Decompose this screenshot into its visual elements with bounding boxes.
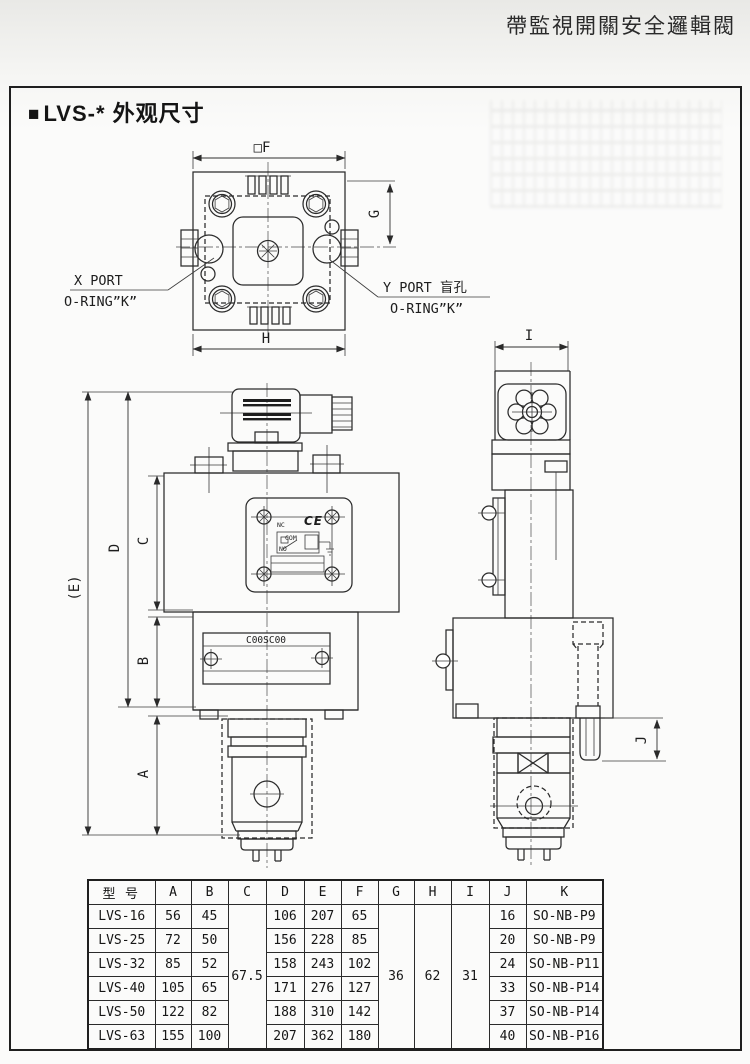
y-port-callout: Y PORT 盲孔 O-RING”K” <box>330 260 490 317</box>
cell-b: 52 <box>191 953 228 977</box>
header-i: I <box>451 880 489 905</box>
side-port-tab <box>432 630 458 690</box>
cell-k: SO-NB-P14 <box>526 977 603 1001</box>
center-screw-symbol <box>258 241 279 262</box>
cell-e: 310 <box>304 1001 341 1025</box>
dimension-j: J <box>602 718 666 761</box>
cell-b: 65 <box>191 977 228 1001</box>
socket-bolt <box>209 191 235 217</box>
cell-d: 158 <box>266 953 304 977</box>
cartridge-side <box>490 718 578 860</box>
side-mount-plate <box>478 498 505 595</box>
cell-b: 82 <box>191 1001 228 1025</box>
cell-a: 72 <box>155 929 191 953</box>
brand-plate: C00SC00 <box>200 633 333 684</box>
valve-main-body <box>164 473 399 612</box>
cable-gland <box>332 397 352 430</box>
left-connector-serration <box>181 230 198 266</box>
cell-d: 106 <box>266 905 304 929</box>
cell-e: 228 <box>304 929 341 953</box>
cell-f: 127 <box>341 977 378 1001</box>
x-port-oring-label: O-RING”K” <box>64 294 137 310</box>
x-port-hole <box>195 235 223 263</box>
cell-j: 40 <box>489 1025 526 1050</box>
cell-h-merged: 62 <box>414 905 451 1050</box>
no-label: NO <box>279 545 287 553</box>
header-h: H <box>414 880 451 905</box>
socket-bolt <box>303 286 329 312</box>
cell-j: 24 <box>489 953 526 977</box>
front-view: NC CE COM NO C00SC00 <box>164 383 399 868</box>
header-k: K <box>526 880 603 905</box>
cell-j: 37 <box>489 1001 526 1025</box>
left-dimensions: (E) D C B A <box>67 392 240 835</box>
com-label: COM <box>285 534 297 542</box>
cell-b: 100 <box>191 1025 228 1050</box>
cell-model: LVS-40 <box>88 977 155 1001</box>
table-row: LVS-32 85 52 158 243 102 24 SO-NB-P11 <box>88 953 603 977</box>
dim-f-label: □F <box>254 140 271 156</box>
y-port-oring-label: O-RING”K” <box>390 301 463 317</box>
din-connector <box>228 389 352 471</box>
dim-c-label: C <box>136 537 152 545</box>
ce-mark: CE <box>304 514 323 528</box>
cell-a: 105 <box>155 977 191 1001</box>
header-a: A <box>155 880 191 905</box>
dim-b-label: B <box>136 657 152 665</box>
dim-e-label: (E) <box>67 575 83 600</box>
cell-d: 207 <box>266 1025 304 1050</box>
header-j: J <box>489 880 526 905</box>
cell-k: SO-NB-P16 <box>526 1025 603 1050</box>
dim-g-label: G <box>367 210 383 218</box>
dimension-i: I <box>495 328 568 371</box>
cell-k: SO-NB-P11 <box>526 953 603 977</box>
header-g: G <box>378 880 414 905</box>
cell-i-merged: 31 <box>451 905 489 1050</box>
cell-model: LVS-32 <box>88 953 155 977</box>
cell-d: 188 <box>266 1001 304 1025</box>
brand-label: C00SC00 <box>246 635 286 646</box>
cell-c-merged: 67.5 <box>228 905 266 1050</box>
cell-f: 180 <box>341 1025 378 1050</box>
socket-bolt <box>303 191 329 217</box>
header-b: B <box>191 880 228 905</box>
cell-a: 122 <box>155 1001 191 1025</box>
cell-a: 85 <box>155 953 191 977</box>
table-row: LVS-25 72 50 156 228 85 20 SO-NB-P9 <box>88 929 603 953</box>
side-view: I <box>432 328 666 868</box>
locating-pin <box>580 718 600 760</box>
scanned-catalog-page: { "page": { "header_title": "帶監視開關安全邏輯閥"… <box>0 0 750 1064</box>
dim-d-label: D <box>107 544 123 552</box>
header-f: F <box>341 880 378 905</box>
serial-label-strip <box>271 556 324 572</box>
cell-a: 155 <box>155 1025 191 1050</box>
hidden-bolt <box>573 622 603 718</box>
cell-b: 45 <box>191 905 228 929</box>
cell-model: LVS-63 <box>88 1025 155 1050</box>
table-row: LVS-50 122 82 188 310 142 37 SO-NB-P14 <box>88 1001 603 1025</box>
top-view <box>176 162 396 340</box>
right-connector-serration <box>341 230 358 266</box>
cell-f: 102 <box>341 953 378 977</box>
cell-f: 65 <box>341 905 378 929</box>
solenoid-tube-side <box>505 490 573 618</box>
cell-d: 156 <box>266 929 304 953</box>
table-row: LVS-16 56 45 67.5 106 207 65 36 62 31 16… <box>88 905 603 929</box>
socket-bolt <box>209 286 235 312</box>
cell-k: SO-NB-P9 <box>526 929 603 953</box>
dim-j-label: J <box>634 736 650 744</box>
dim-a-label: A <box>136 769 152 778</box>
cell-model: LVS-16 <box>88 905 155 929</box>
cell-e: 243 <box>304 953 341 977</box>
table-header-row: 型 号 A B C D E F G H I J K <box>88 880 603 905</box>
cell-j: 16 <box>489 905 526 929</box>
header-d: D <box>266 880 304 905</box>
dimension-table: 型 号 A B C D E F G H I J K LVS-16 56 45 6… <box>87 879 604 1050</box>
manual-override-knob <box>495 371 570 440</box>
cell-g-merged: 36 <box>378 905 414 1050</box>
dimension-h: H <box>193 331 345 356</box>
cell-model: LVS-50 <box>88 1001 155 1025</box>
cell-j: 33 <box>489 977 526 1001</box>
cell-k: SO-NB-P14 <box>526 1001 603 1025</box>
table-row: LVS-63 155 100 207 362 180 40 SO-NB-P16 <box>88 1025 603 1050</box>
header-model: 型 号 <box>88 880 155 905</box>
cell-f: 85 <box>341 929 378 953</box>
x-port-label: X PORT <box>74 273 123 289</box>
cell-f: 142 <box>341 1001 378 1025</box>
cartridge-front <box>193 710 358 861</box>
y-port-label: Y PORT 盲孔 <box>383 279 467 296</box>
cell-b: 50 <box>191 929 228 953</box>
cell-j: 20 <box>489 929 526 953</box>
cell-e: 362 <box>304 1025 341 1050</box>
nameplate: NC CE COM NO <box>246 498 352 592</box>
manifold-block-side <box>453 618 613 718</box>
bottom-terminal-comb <box>247 307 292 324</box>
cell-e: 276 <box>304 977 341 1001</box>
cell-e: 207 <box>304 905 341 929</box>
y-port-hole <box>313 235 341 263</box>
dim-h-label: H <box>262 331 270 347</box>
dim-i-label: I <box>525 328 533 344</box>
cell-a: 56 <box>155 905 191 929</box>
dimension-f: □F <box>193 140 345 169</box>
header-c: C <box>228 880 266 905</box>
cell-k: SO-NB-P9 <box>526 905 603 929</box>
header-e: E <box>304 880 341 905</box>
cell-model: LVS-25 <box>88 929 155 953</box>
table-row: LVS-40 105 65 171 276 127 33 SO-NB-P14 <box>88 977 603 1001</box>
dimension-drawing: □F G H X PORT O-RING”K” Y PORT 盲孔 O-RING… <box>0 0 750 880</box>
cell-d: 171 <box>266 977 304 1001</box>
dimension-g: G <box>347 181 395 244</box>
nameplate-nc-label: NC <box>277 521 285 529</box>
